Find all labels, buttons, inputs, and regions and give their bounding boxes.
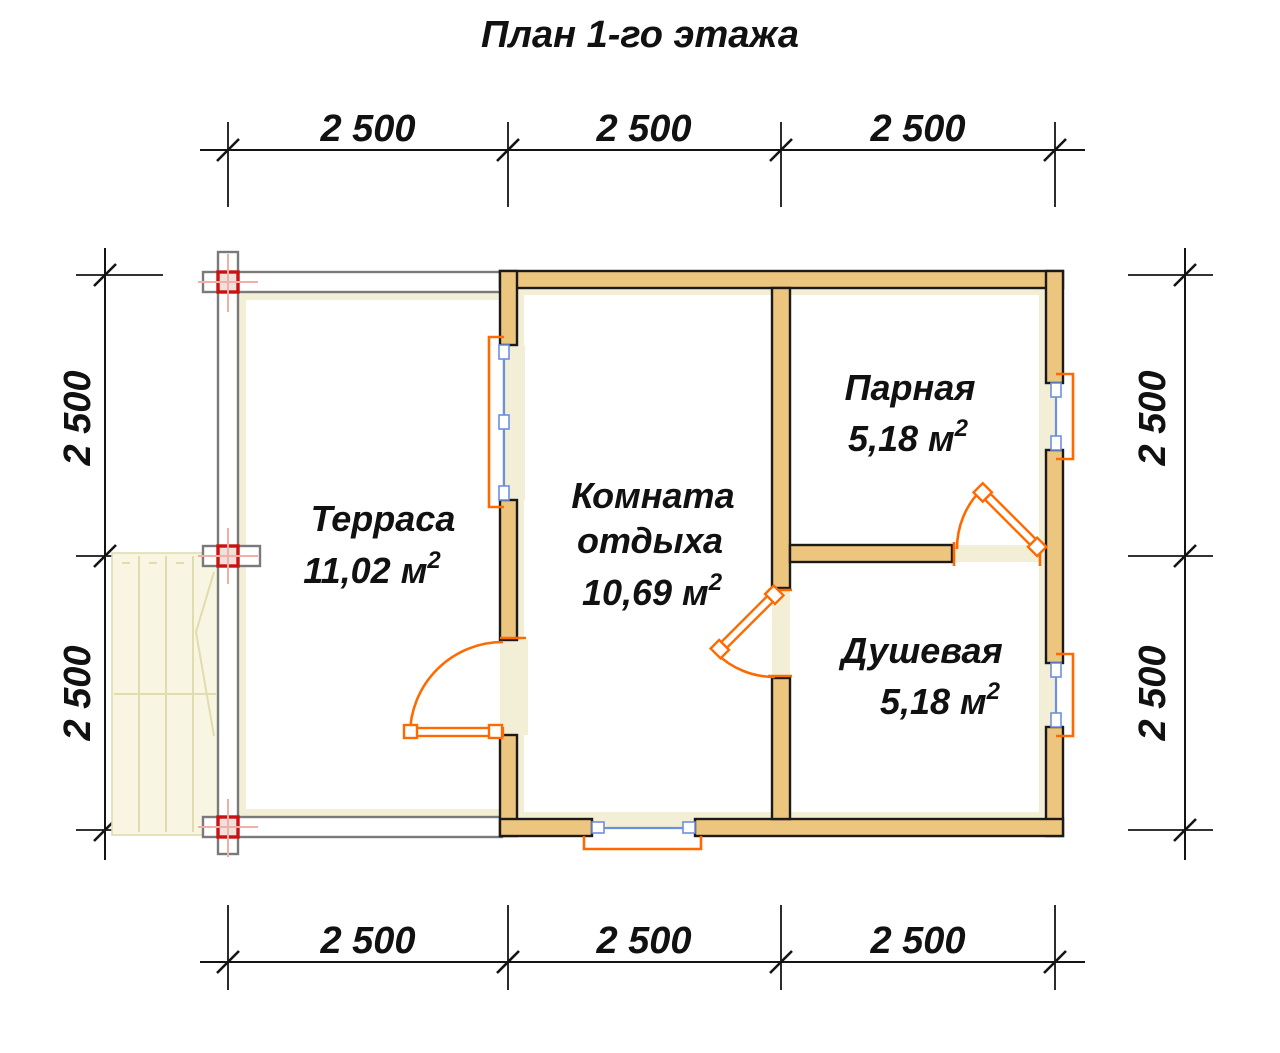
dim-label-bottom-1: 2 500 xyxy=(319,920,415,962)
dim-label-bottom-2: 2 500 xyxy=(595,920,691,962)
room-name-line1: Комната xyxy=(571,475,734,516)
dimension-chain-top: 2 500 2 500 2 500 xyxy=(200,108,1085,207)
page-title: План 1-го этажа xyxy=(481,14,799,56)
exterior-wall-bottom-seg2 xyxy=(695,819,1063,836)
dim-label-right-2: 2 500 xyxy=(1132,645,1174,741)
dimension-chain-bottom: 2 500 2 500 2 500 xyxy=(200,905,1085,990)
room-label-shower: Душевая 5,18 м2 xyxy=(838,630,1002,722)
exterior-wall-bottom-seg1 xyxy=(500,819,592,836)
partition-vertical-seg2 xyxy=(772,678,790,819)
door-swing-arc xyxy=(410,642,503,735)
dim-label-top-1: 2 500 xyxy=(319,108,415,150)
terrace-lining-bottom xyxy=(238,809,502,817)
window-frame-bracket xyxy=(584,836,701,849)
partition-vertical-seg1 xyxy=(772,288,790,588)
room-label-sauna: Парная 5,18 м2 xyxy=(845,367,976,459)
partition-horizontal xyxy=(790,545,952,562)
room-label-lounge: Комната отдыха 10,69 м2 xyxy=(571,475,734,613)
room-name: Душевая xyxy=(838,630,1002,671)
dim-label-top-3: 2 500 xyxy=(869,108,965,150)
room-area: 11,02 м2 xyxy=(303,547,441,591)
dimension-chain-right: 2 500 2 500 xyxy=(1128,248,1213,860)
door-leaf xyxy=(720,595,774,649)
dim-label-left-2: 2 500 xyxy=(57,645,99,741)
room-area: 5,18 м2 xyxy=(880,678,1001,722)
door-leaf-pad xyxy=(489,725,502,738)
room-area: 5,18 м2 xyxy=(848,415,969,459)
room-name: Терраса xyxy=(311,498,456,539)
door-swing-arc xyxy=(957,490,981,549)
exterior-wall-left-seg1 xyxy=(500,271,517,345)
room-label-terrace: Терраса 11,02 м2 xyxy=(303,498,455,591)
dim-label-top-2: 2 500 xyxy=(595,108,691,150)
exterior-wall-left-seg2 xyxy=(500,500,517,640)
dim-label-right-1: 2 500 xyxy=(1132,370,1174,466)
terrace-lining-top xyxy=(238,292,502,300)
room-name: Парная xyxy=(845,367,976,408)
exterior-wall-top xyxy=(500,271,1063,288)
room-name-line2: отдыха xyxy=(577,520,723,561)
floor-plan-page: План 1-го этажа 2 500 2 500 2 500 2 500 … xyxy=(0,0,1280,1053)
room-area: 10,69 м2 xyxy=(582,569,723,613)
dim-label-bottom-3: 2 500 xyxy=(869,920,965,962)
terrace-post-marker xyxy=(198,254,258,312)
door-swing-arc xyxy=(716,653,775,677)
exterior-wall-right-seg2 xyxy=(1046,450,1063,663)
exterior-wall-right-seg1 xyxy=(1046,271,1063,383)
floor-plan-drawing: План 1-го этажа 2 500 2 500 2 500 2 500 … xyxy=(0,0,1280,1053)
door-leaf xyxy=(985,494,1039,548)
door-leaf-pad xyxy=(404,725,417,738)
dim-tick xyxy=(1128,264,1213,841)
dim-label-left-1: 2 500 xyxy=(57,370,99,466)
terrace-stairs xyxy=(112,553,218,835)
